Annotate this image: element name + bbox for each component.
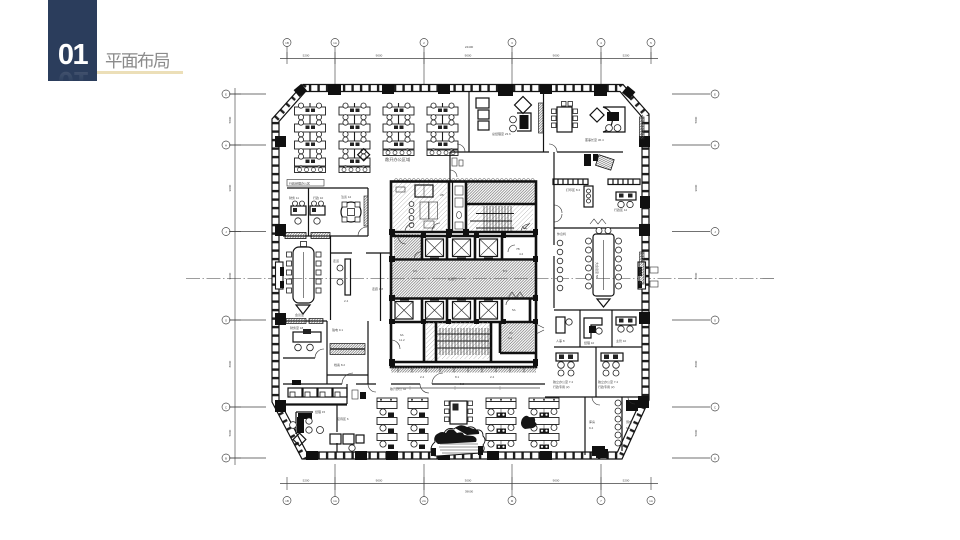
svg-text:M: M xyxy=(511,499,514,503)
svg-text:敞开办公 42: 敞开办公 42 xyxy=(390,386,407,391)
svg-text:7B: 7B xyxy=(516,247,520,251)
svg-text:J: J xyxy=(225,230,227,234)
svg-text:弱电: 弱电 xyxy=(626,419,632,424)
svg-text:会议室: 会议室 xyxy=(295,312,304,317)
svg-text:9000: 9000 xyxy=(376,54,383,58)
svg-text:9000: 9000 xyxy=(465,54,472,58)
svg-text:6.1: 6.1 xyxy=(626,426,631,430)
svg-text:经理 10: 经理 10 xyxy=(584,340,595,345)
svg-text:1A: 1A xyxy=(333,499,337,503)
svg-text:1A: 1A xyxy=(333,41,337,45)
svg-text:5200: 5200 xyxy=(303,54,310,58)
svg-text:J: J xyxy=(714,230,716,234)
svg-text:9000: 9000 xyxy=(376,479,383,483)
svg-text:G: G xyxy=(225,318,228,322)
svg-text:走道: 走道 xyxy=(333,258,339,263)
svg-text:走廊 1.8: 走廊 1.8 xyxy=(372,286,383,291)
svg-text:洽谈 12: 洽谈 12 xyxy=(341,194,352,199)
svg-text:9000: 9000 xyxy=(694,184,698,191)
svg-text:6A: 6A xyxy=(400,333,404,337)
svg-text:电梯厅: 电梯厅 xyxy=(447,276,456,281)
svg-text:9000: 9000 xyxy=(553,54,560,58)
svg-text:4: 4 xyxy=(600,41,602,45)
svg-text:行政专用 (2): 行政专用 (2) xyxy=(553,384,570,389)
svg-text:39600: 39600 xyxy=(465,490,474,494)
svg-text:行政区 12: 行政区 12 xyxy=(614,207,628,212)
svg-text:5: 5 xyxy=(650,41,652,45)
svg-text:1A: 1A xyxy=(649,499,653,503)
svg-text:打印区 8.4: 打印区 8.4 xyxy=(566,187,580,192)
svg-text:财务 11: 财务 11 xyxy=(289,195,299,200)
svg-text:5200: 5200 xyxy=(623,54,630,58)
svg-text:人事 8: 人事 8 xyxy=(556,338,565,343)
svg-text:強电 9.1: 強电 9.1 xyxy=(332,327,343,332)
svg-text:C: C xyxy=(225,405,228,409)
svg-text:2.4: 2.4 xyxy=(490,375,495,379)
svg-text:财务室 18: 财务室 18 xyxy=(290,325,304,330)
svg-text:9000: 9000 xyxy=(553,479,560,483)
svg-text:5200: 5200 xyxy=(623,479,630,483)
svg-text:5800: 5800 xyxy=(694,116,698,123)
svg-text:9000: 9000 xyxy=(228,184,232,191)
svg-text:H: H xyxy=(714,143,716,147)
svg-text:2: 2 xyxy=(423,41,425,45)
svg-text:6.2: 6.2 xyxy=(508,336,513,340)
svg-text:5000: 5000 xyxy=(228,429,232,436)
svg-text:2B: 2B xyxy=(440,193,444,197)
svg-text:B: B xyxy=(225,456,227,460)
svg-text:C: C xyxy=(714,405,717,409)
svg-text:7: 7 xyxy=(600,499,602,503)
svg-text:休息椅: 休息椅 xyxy=(557,231,566,236)
svg-text:8000: 8000 xyxy=(694,360,698,367)
svg-text:9.6: 9.6 xyxy=(413,269,418,273)
svg-text:3: 3 xyxy=(511,41,513,45)
svg-text:敞开办公区域: 敞开办公区域 xyxy=(385,156,411,163)
svg-text:行政专用 (2): 行政专用 (2) xyxy=(598,384,615,389)
svg-text:5A: 5A xyxy=(512,308,516,312)
svg-text:8000: 8000 xyxy=(228,360,232,367)
svg-text:G: G xyxy=(714,318,717,322)
svg-text:B: B xyxy=(714,456,716,460)
svg-text:E: E xyxy=(714,92,716,96)
svg-text:3000: 3000 xyxy=(465,479,472,483)
svg-text:库房: 库房 xyxy=(589,419,595,424)
svg-text:E: E xyxy=(225,92,227,96)
svg-text:1B: 1B xyxy=(285,41,289,45)
svg-text:5000: 5000 xyxy=(694,429,698,436)
svg-text:经理 15: 经理 15 xyxy=(315,409,326,414)
svg-text:大会议室 58: 大会议室 58 xyxy=(595,262,600,279)
svg-text:独立办公室 7.4: 独立办公室 7.4 xyxy=(553,379,573,384)
svg-text:档案 8.2: 档案 8.2 xyxy=(334,362,345,367)
svg-text:接待区 6: 接待区 6 xyxy=(337,416,349,421)
svg-text:总经理室 23.6: 总经理室 23.6 xyxy=(492,131,511,136)
svg-text:主管 10: 主管 10 xyxy=(616,338,627,343)
svg-text:行政经理办公区: 行政经理办公区 xyxy=(289,181,310,186)
svg-text:5200: 5200 xyxy=(303,479,310,483)
svg-text:2.4: 2.4 xyxy=(420,375,425,379)
svg-text:H: H xyxy=(225,143,227,147)
svg-text:2.4: 2.4 xyxy=(344,299,349,303)
svg-text:1B: 1B xyxy=(285,499,289,503)
svg-text:行政 10: 行政 10 xyxy=(313,195,324,200)
svg-text:5800: 5800 xyxy=(228,116,232,123)
svg-text:11.2: 11.2 xyxy=(399,338,405,342)
svg-text:24400: 24400 xyxy=(465,45,474,49)
svg-text:董事长室 36.4: 董事长室 36.4 xyxy=(585,137,604,142)
svg-text:8.1: 8.1 xyxy=(455,375,460,379)
svg-text:8.4: 8.4 xyxy=(503,269,508,273)
svg-text:9.4: 9.4 xyxy=(589,426,594,430)
svg-text:4.2: 4.2 xyxy=(519,252,524,256)
svg-text:2A: 2A xyxy=(422,499,426,503)
svg-text:独立办公室 7.4: 独立办公室 7.4 xyxy=(598,379,618,384)
